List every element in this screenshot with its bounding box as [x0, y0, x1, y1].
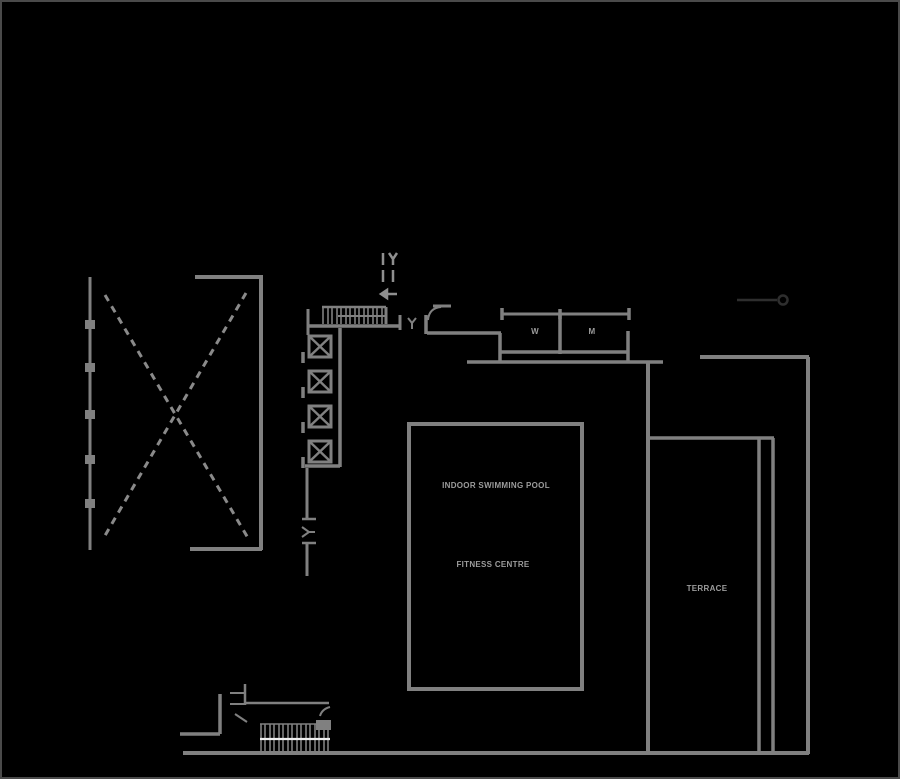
- dashed-x-brace: [103, 293, 248, 539]
- fitness-label: FITNESS CENTRE: [456, 560, 529, 569]
- elevator-car-3: [309, 406, 331, 427]
- elevator-car-1: [309, 336, 331, 357]
- room-m-label: M: [589, 327, 596, 336]
- upper-staircase: [307, 307, 400, 335]
- corridor-west-wall: [302, 468, 316, 576]
- door-marker-y: [408, 318, 416, 329]
- changing-rooms: [467, 308, 663, 363]
- pool-label: INDOOR SWIMMING POOL: [442, 481, 550, 490]
- pool-room: [409, 424, 582, 689]
- lower-door-arc: [320, 707, 330, 716]
- lower-door-swing: [235, 714, 247, 722]
- lower-staircase: [260, 720, 331, 753]
- terrace-label: TERRACE: [687, 584, 728, 593]
- upper-door: [408, 306, 501, 334]
- left-wall-with-ties: [85, 277, 95, 550]
- open-bracket-wall: [190, 275, 262, 550]
- elevator-car-2: [309, 371, 331, 392]
- matchline-arrow: [302, 527, 315, 537]
- stair-direction-markers: [381, 253, 397, 298]
- terrace-walls: [183, 357, 809, 754]
- leader-pin: [737, 296, 788, 305]
- floor-plan-canvas: W M INDOOR SWIMMING POOL FITNESS CENTRE …: [0, 0, 900, 779]
- lower-entry: [180, 684, 330, 734]
- elevator-car-4: [309, 441, 331, 462]
- leader-pin-circle: [779, 296, 788, 305]
- room-w-label: W: [531, 327, 539, 336]
- elevator-shaft: [303, 328, 340, 472]
- floor-plan-drawing: W M INDOOR SWIMMING POOL FITNESS CENTRE …: [2, 2, 900, 779]
- door-swing-arc: [428, 307, 441, 320]
